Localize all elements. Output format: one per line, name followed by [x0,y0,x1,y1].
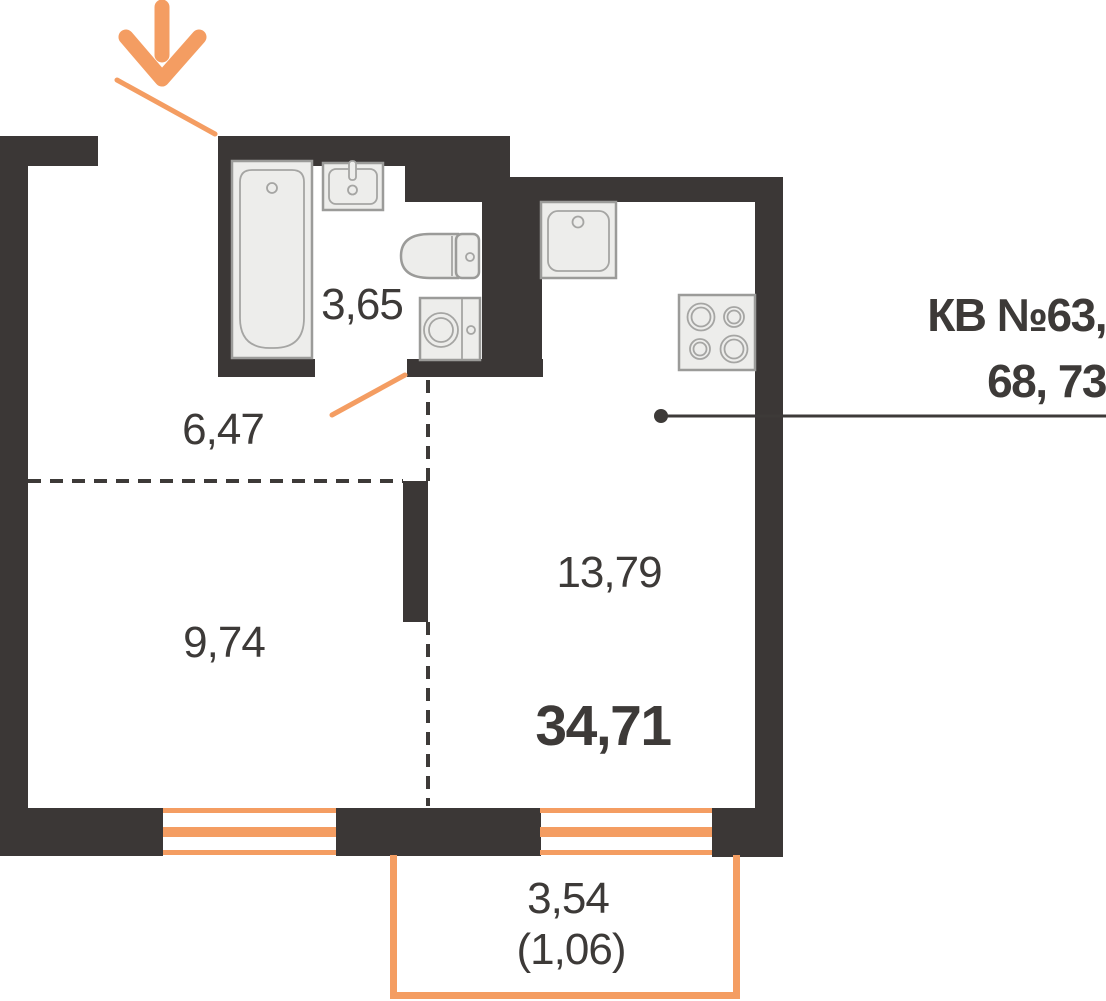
wall-kitchen-top [505,177,783,202]
unit-number: КВ №63, 68, 73 [927,282,1106,414]
unit-number-line2: 68, 73 [927,348,1106,414]
label-total-area: 34,71 [535,693,670,759]
window-bedroom [163,808,336,855]
window-line [540,808,712,813]
wall-bathroom-top-thick [405,166,510,202]
callout-dot [654,409,668,423]
stove-icon [679,295,755,370]
wall-right [755,177,783,857]
washing-machine-icon [420,298,480,360]
toilet-icon [401,234,479,278]
entrance-arrow-icon [126,7,199,79]
floor-plan: 3,65 6,47 9,74 13,79 34,71 3,54 (1,06) К… [0,0,1106,1001]
window-line [163,808,336,813]
bathtub-icon [232,161,312,358]
unit-number-line1: КВ №63, [927,282,1106,348]
wall-partition-stub [403,481,428,622]
wall-bathroom-bottom-left [218,359,315,377]
wall-bottom-middle [336,808,541,856]
window-line [163,850,336,855]
wall-bottom-right [712,808,783,857]
window-line [540,827,712,837]
wall-bottom-left [0,808,163,856]
wall-bathroom-top [218,136,510,166]
kitchen-sink-icon [541,202,616,278]
label-balcony-counted-area: (1,06) [517,925,626,975]
label-bathroom-area: 3,65 [321,280,403,330]
window-kitchen [540,808,712,855]
wall-bathroom-left [218,136,232,377]
wall-bathroom-bottom-right [407,359,543,377]
label-kitchen-living-area: 13,79 [556,548,661,598]
window-line [163,827,336,837]
bathroom-sink-icon [323,161,383,210]
bathroom-door-swing [332,375,405,415]
wall-left [0,136,28,855]
label-hallway-area: 6,47 [182,405,264,455]
label-balcony-area: 3,54 [527,874,609,924]
wall-duct-shaft [482,202,542,377]
label-bedroom-area: 9,74 [183,618,265,668]
entrance-door-swing [117,80,215,134]
